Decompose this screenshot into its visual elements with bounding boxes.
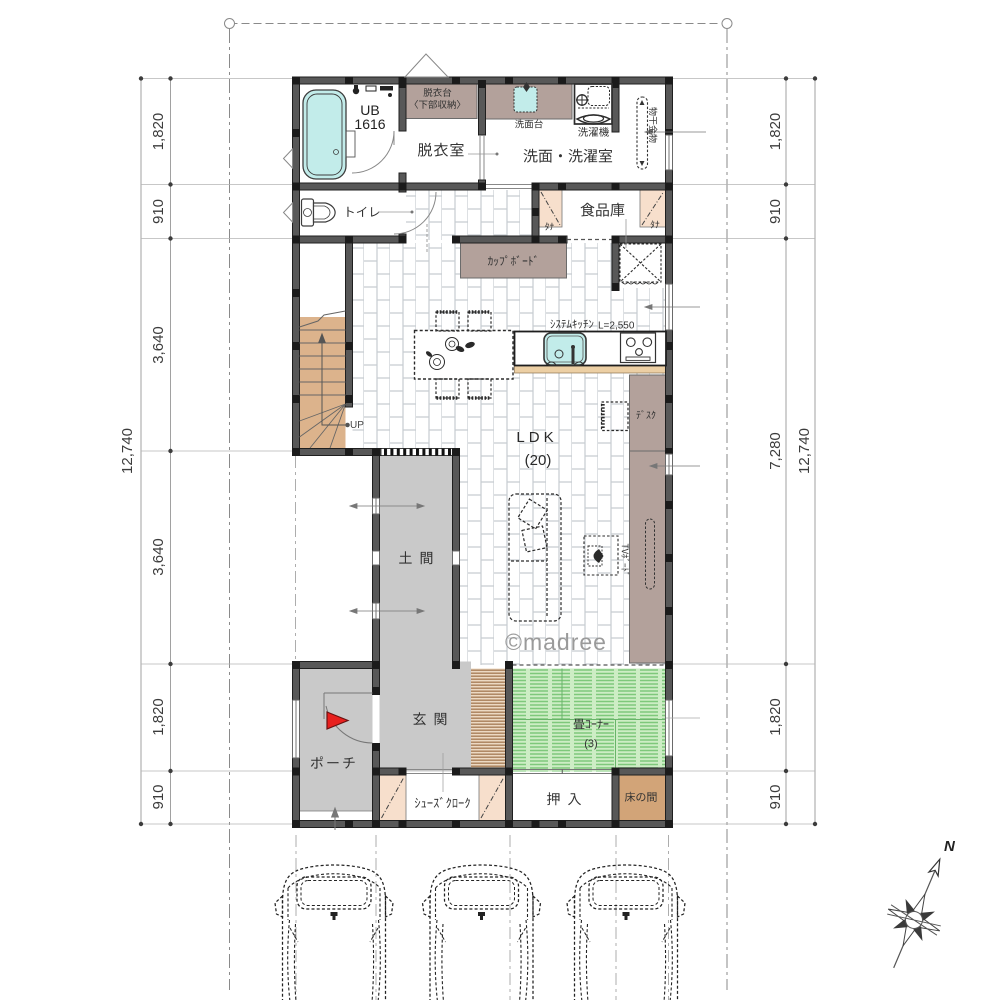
svg-text:L=2,550: L=2,550: [598, 321, 635, 332]
svg-text:1616: 1616: [354, 116, 385, 132]
svg-text:910: 910: [767, 784, 784, 809]
svg-text:UP: UP: [350, 420, 364, 431]
svg-text:(3): (3): [584, 738, 597, 750]
svg-text:1,820: 1,820: [150, 698, 167, 736]
svg-text:910: 910: [150, 784, 167, 809]
svg-text:910: 910: [767, 199, 784, 224]
svg-text:1,820: 1,820: [767, 113, 784, 151]
svg-text:3,640: 3,640: [150, 326, 167, 364]
svg-text:©madree: ©madree: [505, 629, 607, 655]
svg-text:1,820: 1,820: [767, 698, 784, 736]
svg-text:N: N: [944, 838, 956, 855]
svg-text:LDK: LDK: [516, 429, 557, 446]
svg-text:910: 910: [150, 199, 167, 224]
svg-text:12,740: 12,740: [796, 428, 813, 474]
svg-text:(20): (20): [525, 452, 552, 469]
svg-text:12,740: 12,740: [119, 428, 136, 474]
svg-text:7,280: 7,280: [767, 432, 784, 470]
svg-text:1,820: 1,820: [150, 113, 167, 151]
svg-text:3,640: 3,640: [150, 538, 167, 576]
